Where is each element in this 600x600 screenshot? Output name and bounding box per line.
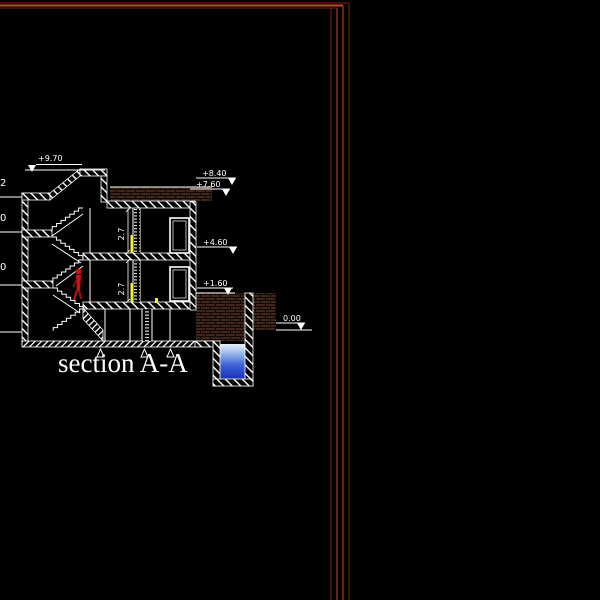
elevation-label-970: +9.70 xyxy=(38,154,63,163)
elevation-flag-icon xyxy=(229,247,237,254)
section-drawing-svg: 2 0 0 2.7 2.7 +9.70 +8.40 +7.60 xyxy=(0,0,600,600)
elevation-flag-icon xyxy=(222,189,230,196)
building-section: 2 0 0 2.7 2.7 +9.70 +8.40 +7.60 xyxy=(0,154,312,386)
interior-partitions xyxy=(90,208,170,341)
door-lower xyxy=(170,267,189,301)
elevation-label-160: +1.60 xyxy=(203,279,228,288)
elevation-marker-460: +4.60 xyxy=(197,238,237,254)
cad-canvas: 2 0 0 2.7 2.7 +9.70 +8.40 +7.60 xyxy=(0,0,600,600)
left-dim-2: 0 xyxy=(0,213,6,224)
person-figure xyxy=(73,269,82,301)
drawing-title: section A-A xyxy=(58,348,188,378)
elevation-flag-icon xyxy=(297,323,305,330)
left-dim-1: 2 xyxy=(0,178,6,189)
elevation-label-760: +7.60 xyxy=(196,180,221,189)
pool-water xyxy=(220,344,245,379)
door-upper xyxy=(170,218,189,253)
elevation-flag-icon xyxy=(28,165,36,172)
room-height-lower: 2.7 xyxy=(117,283,126,296)
elevation-label-000: 0.00 xyxy=(283,314,301,323)
elevation-marker-000: 0.00 xyxy=(276,314,312,330)
elevation-label-460: +4.60 xyxy=(203,238,228,247)
elevation-flag-icon xyxy=(228,178,236,185)
left-dim-3: 0 xyxy=(0,262,6,273)
brick-terrace xyxy=(196,293,276,341)
room-height-upper: 2.7 xyxy=(117,228,126,241)
elevation-label-840: +8.40 xyxy=(202,169,227,178)
